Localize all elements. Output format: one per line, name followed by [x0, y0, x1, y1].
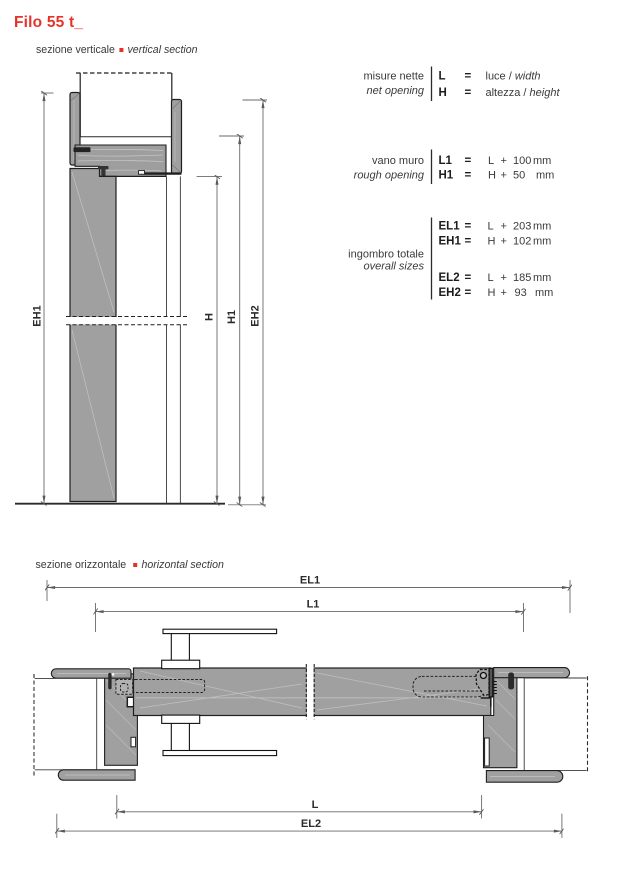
svg-text:H: H	[488, 169, 496, 181]
svg-text:L1: L1	[439, 155, 453, 167]
svg-text:ingombro totale: ingombro totale	[348, 249, 424, 261]
svg-text:50: 50	[513, 169, 525, 181]
svg-text:vertical section: vertical section	[128, 44, 198, 56]
svg-text:+: +	[501, 236, 507, 248]
svg-text:EH2: EH2	[250, 305, 262, 326]
svg-text:rough opening: rough opening	[354, 169, 425, 181]
svg-text:100: 100	[513, 155, 531, 167]
svg-text:L: L	[488, 220, 494, 232]
svg-text:93: 93	[515, 287, 527, 299]
svg-text:+: +	[501, 169, 507, 181]
svg-text:=: =	[465, 169, 472, 181]
svg-text:mm: mm	[536, 169, 554, 181]
svg-text:horizontal section: horizontal section	[142, 559, 225, 571]
svg-text:=: =	[465, 220, 472, 232]
svg-text:H: H	[204, 313, 216, 321]
svg-text:+: +	[501, 220, 507, 232]
svg-text:=: =	[465, 71, 472, 83]
svg-text:EL1: EL1	[300, 575, 320, 587]
svg-text:=: =	[465, 287, 472, 299]
svg-text:sezione orizzontale: sezione orizzontale	[36, 559, 127, 571]
svg-text:L1: L1	[307, 599, 320, 611]
svg-text:mm: mm	[533, 220, 551, 232]
svg-text:EH1: EH1	[32, 305, 44, 326]
svg-text:EL1: EL1	[439, 220, 461, 232]
svg-text:mm: mm	[533, 155, 551, 167]
svg-text:185: 185	[513, 272, 531, 284]
svg-text:H1: H1	[439, 169, 454, 181]
svg-text:sezione verticale: sezione verticale	[36, 44, 115, 56]
svg-text:altezza / height: altezza / height	[486, 87, 561, 99]
svg-text:EL2: EL2	[439, 272, 460, 284]
svg-text:102: 102	[513, 236, 531, 248]
svg-text:+: +	[501, 155, 507, 167]
svg-text:misure nette: misure nette	[363, 71, 424, 83]
svg-text:Filo 55 t_: Filo 55 t_	[14, 14, 83, 31]
svg-text:H: H	[488, 287, 496, 299]
svg-text:overall sizes: overall sizes	[363, 261, 424, 273]
svg-text:L: L	[488, 155, 494, 167]
svg-text:EH1: EH1	[439, 236, 462, 248]
svg-text:EH2: EH2	[439, 287, 461, 299]
svg-text:H: H	[439, 87, 447, 99]
svg-text:L: L	[439, 71, 446, 83]
svg-text:+: +	[501, 272, 507, 284]
svg-text:H: H	[488, 236, 496, 248]
svg-text:=: =	[465, 87, 472, 99]
svg-text:=: =	[465, 155, 472, 167]
svg-text:=: =	[465, 236, 472, 248]
svg-text:mm: mm	[535, 287, 553, 299]
svg-text:vano muro: vano muro	[372, 155, 424, 167]
svg-text:EL2: EL2	[301, 818, 321, 830]
svg-text:203: 203	[513, 220, 531, 232]
svg-text:L: L	[488, 272, 494, 284]
svg-text:+: +	[501, 287, 507, 299]
svg-text:H1: H1	[226, 310, 238, 324]
svg-text:luce / width: luce / width	[486, 71, 541, 83]
svg-text:net opening: net opening	[367, 85, 425, 97]
svg-text:mm: mm	[533, 272, 551, 284]
svg-text:mm: mm	[533, 236, 551, 248]
svg-text:=: =	[465, 272, 472, 284]
svg-text:L: L	[312, 799, 319, 811]
